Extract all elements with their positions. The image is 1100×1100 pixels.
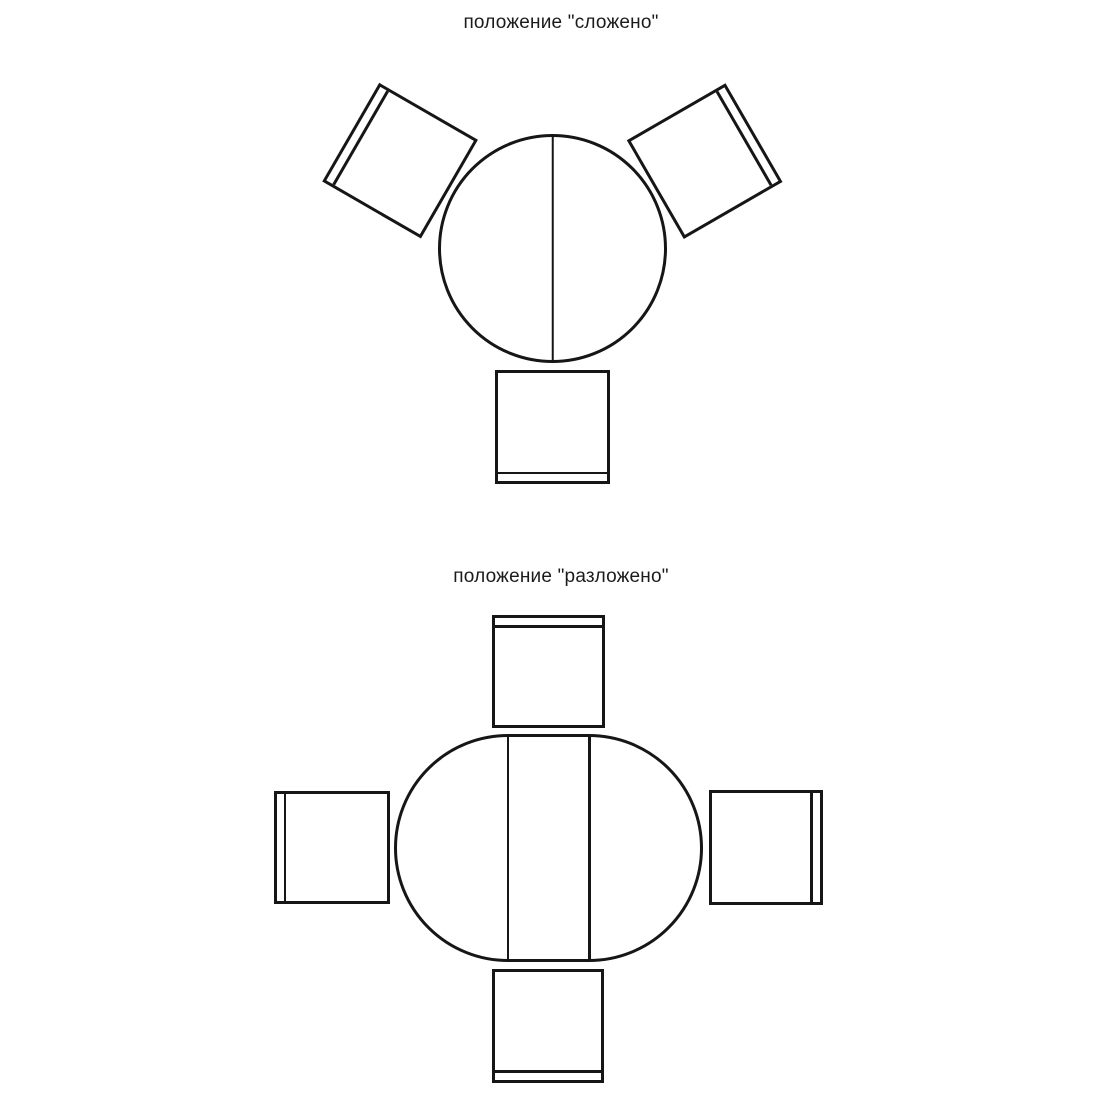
chair-backrest (284, 794, 287, 902)
extended-table-top (394, 734, 704, 963)
chair-backrest (495, 625, 603, 628)
diagram-canvas: положение "сложено" положение "разложено… (0, 0, 1100, 1100)
chair-top (492, 615, 606, 728)
extension-leaf-line-right (588, 737, 591, 960)
chair-backrest (810, 793, 813, 902)
chair-left (274, 791, 390, 905)
round-table-top (438, 134, 667, 363)
chair-right (709, 790, 823, 905)
chair-backrest (498, 472, 607, 475)
table-fold-line (551, 137, 554, 360)
chair-bottom (492, 969, 605, 1083)
extension-leaf-line-left (507, 737, 510, 960)
chair-bottom (495, 370, 610, 484)
figure-unfolded-caption: положение "разложено" (453, 566, 668, 588)
chair-backrest (332, 90, 388, 184)
chair-backrest (495, 1070, 602, 1073)
chair-backrest (716, 90, 772, 184)
figure-folded-caption: положение "сложено" (463, 12, 658, 34)
